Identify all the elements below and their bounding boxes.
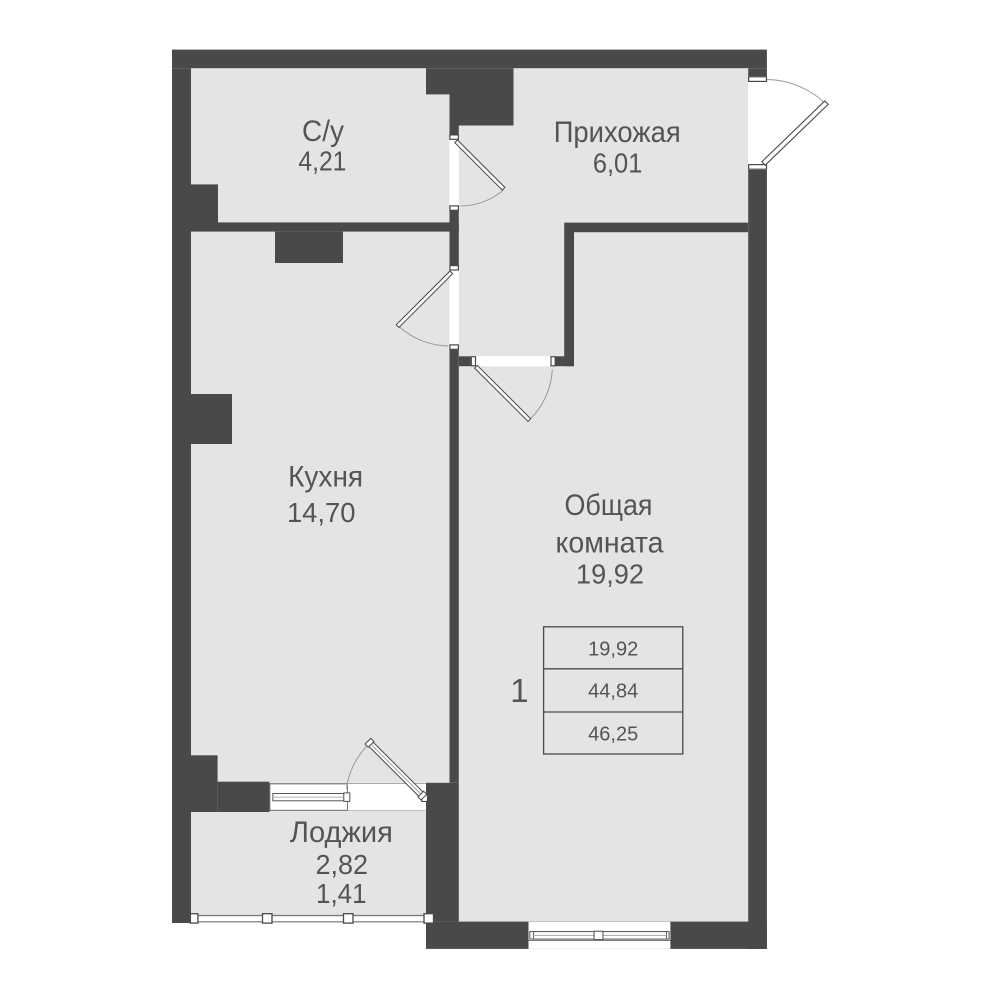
- svg-text:44,84: 44,84: [588, 681, 638, 703]
- svg-text:19,92: 19,92: [576, 559, 644, 590]
- svg-text:1: 1: [510, 672, 528, 709]
- svg-text:Общая: Общая: [565, 489, 653, 522]
- svg-text:комната: комната: [556, 527, 664, 560]
- svg-text:19,92: 19,92: [588, 639, 638, 661]
- svg-text:14,70: 14,70: [287, 497, 356, 528]
- svg-text:Кухня: Кухня: [288, 460, 363, 493]
- svg-text:1,41: 1,41: [316, 878, 367, 909]
- svg-text:Прихожая: Прихожая: [554, 116, 681, 149]
- svg-text:4,21: 4,21: [298, 146, 346, 177]
- svg-text:2,82: 2,82: [316, 849, 369, 880]
- svg-text:С/у: С/у: [302, 115, 344, 148]
- svg-text:Лоджия: Лоджия: [290, 816, 393, 849]
- svg-text:46,25: 46,25: [588, 724, 638, 746]
- svg-text:6,01: 6,01: [593, 147, 643, 178]
